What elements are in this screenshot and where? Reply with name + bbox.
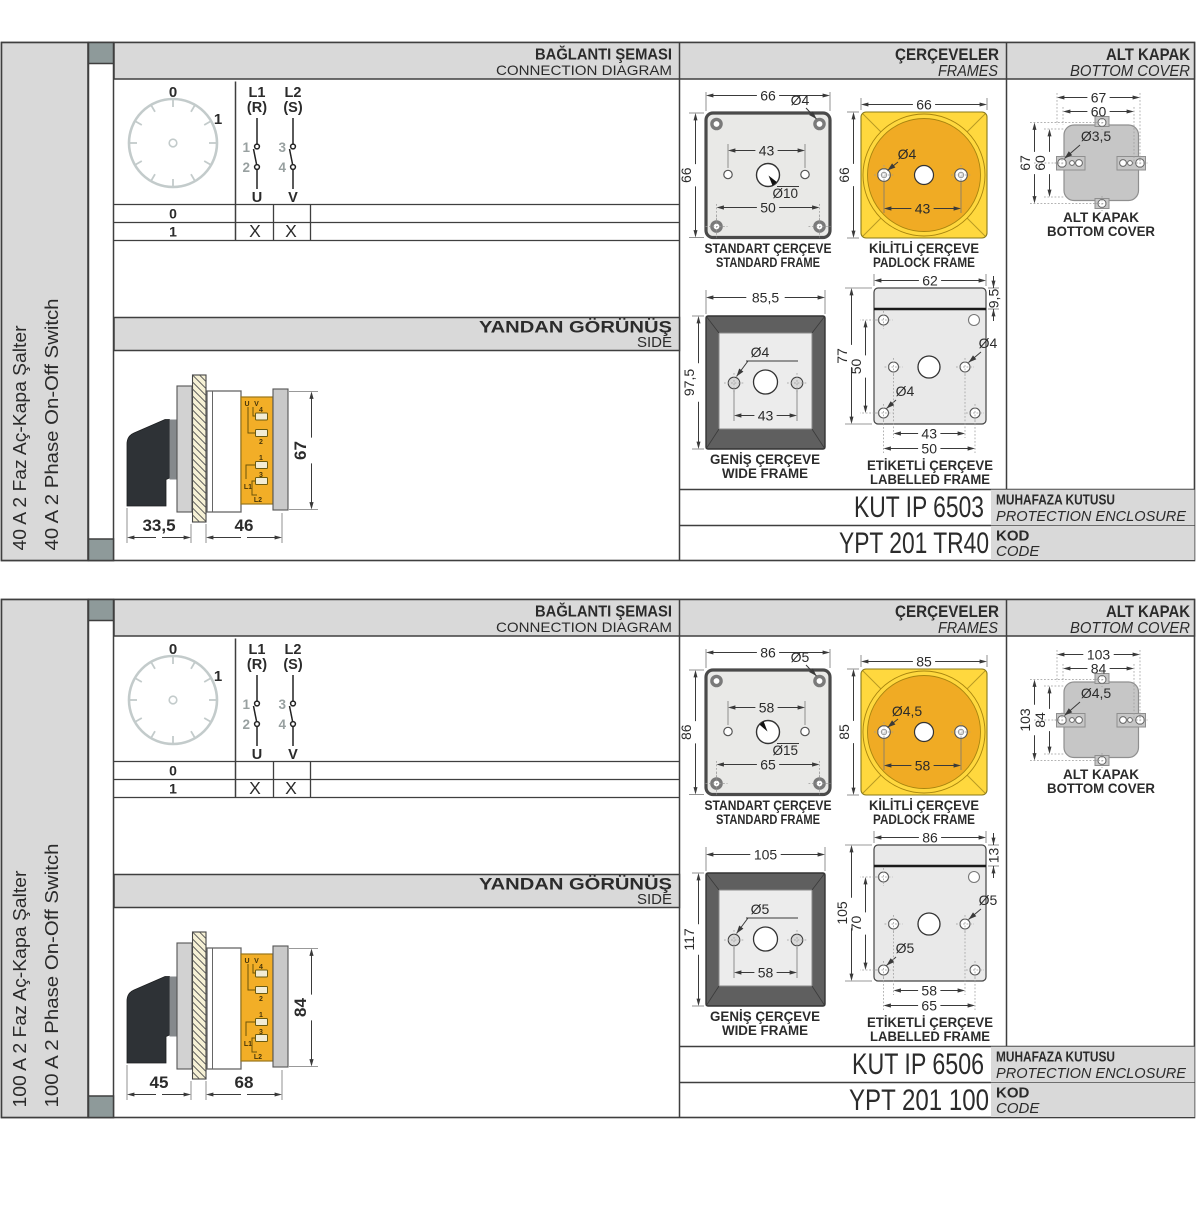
- svg-text:L2: L2: [285, 85, 302, 101]
- svg-text:66: 66: [760, 87, 776, 103]
- svg-text:1: 1: [259, 455, 263, 462]
- svg-text:58: 58: [921, 982, 937, 998]
- svg-text:SIDE: SIDE: [637, 334, 672, 351]
- svg-text:43: 43: [921, 425, 937, 441]
- svg-text:33,5: 33,5: [142, 516, 175, 535]
- svg-text:PADLOCK FRAME: PADLOCK FRAME: [873, 255, 975, 270]
- svg-text:50: 50: [921, 440, 937, 456]
- svg-text:STANDARD FRAME: STANDARD FRAME: [716, 812, 820, 827]
- svg-text:U: U: [244, 401, 249, 408]
- svg-text:X: X: [249, 221, 261, 241]
- svg-text:(R): (R): [247, 657, 267, 673]
- svg-text:Ø5: Ø5: [791, 649, 810, 665]
- svg-text:YPT 201 100: YPT 201 100: [849, 1084, 989, 1117]
- svg-text:BOTTOM COVER: BOTTOM COVER: [1047, 224, 1155, 239]
- svg-text:84: 84: [291, 998, 310, 1017]
- svg-text:97,5: 97,5: [681, 369, 697, 396]
- svg-text:KUT IP 6503: KUT IP 6503: [854, 491, 984, 524]
- svg-text:86: 86: [922, 829, 938, 845]
- svg-text:CONNECTION DIAGRAM: CONNECTION DIAGRAM: [496, 62, 672, 78]
- svg-text:ETİKETLİ ÇERÇEVE: ETİKETLİ ÇERÇEVE: [867, 1015, 993, 1030]
- svg-text:60: 60: [1091, 103, 1107, 119]
- svg-text:65: 65: [921, 997, 937, 1013]
- svg-text:LABELLED FRAME: LABELLED FRAME: [870, 1029, 990, 1044]
- svg-text:85: 85: [836, 724, 852, 740]
- svg-text:PROTECTION ENCLOSURE: PROTECTION ENCLOSURE: [996, 508, 1187, 525]
- svg-text:13: 13: [986, 848, 1002, 864]
- svg-text:2: 2: [259, 996, 263, 1003]
- svg-text:Ø5: Ø5: [979, 892, 998, 908]
- svg-text:85,5: 85,5: [752, 289, 779, 305]
- svg-text:L1: L1: [244, 1041, 252, 1048]
- svg-text:Ø4: Ø4: [791, 92, 810, 108]
- svg-text:70: 70: [848, 916, 864, 932]
- svg-text:WIDE FRAME: WIDE FRAME: [722, 466, 808, 481]
- svg-text:1: 1: [259, 1012, 263, 1019]
- svg-text:GENİŞ ÇERÇEVE: GENİŞ ÇERÇEVE: [710, 452, 820, 467]
- svg-text:YPT 201 TR40: YPT 201 TR40: [839, 527, 989, 560]
- svg-text:L2: L2: [254, 1054, 262, 1061]
- svg-text:ÇERÇEVELER: ÇERÇEVELER: [895, 602, 999, 621]
- svg-text:BAĞLANTI ŞEMASI: BAĞLANTI ŞEMASI: [535, 603, 672, 621]
- svg-text:Ø4: Ø4: [896, 383, 915, 399]
- svg-text:0: 0: [169, 84, 177, 101]
- svg-text:KOD: KOD: [996, 528, 1030, 545]
- svg-text:U: U: [252, 190, 262, 206]
- svg-text:L2: L2: [254, 497, 262, 504]
- svg-text:ETİKETLİ ÇERÇEVE: ETİKETLİ ÇERÇEVE: [867, 458, 993, 473]
- svg-text:86: 86: [678, 724, 694, 740]
- svg-text:1: 1: [169, 781, 177, 797]
- svg-text:Ø4: Ø4: [898, 146, 917, 162]
- svg-text:Ø3,5: Ø3,5: [1081, 128, 1112, 144]
- svg-text:9,5: 9,5: [986, 289, 1002, 309]
- svg-text:U: U: [252, 747, 262, 763]
- svg-text:ALT KAPAK: ALT KAPAK: [1063, 210, 1139, 225]
- svg-text:FRAMES: FRAMES: [938, 63, 999, 80]
- svg-text:V: V: [288, 747, 298, 763]
- svg-text:MUHAFAZA KUTUSU: MUHAFAZA KUTUSU: [996, 1049, 1115, 1066]
- svg-text:1: 1: [242, 697, 250, 712]
- svg-text:84: 84: [1091, 660, 1107, 676]
- svg-text:50: 50: [760, 199, 776, 215]
- svg-text:103: 103: [1017, 708, 1033, 732]
- svg-text:46: 46: [235, 516, 254, 535]
- svg-text:V: V: [288, 190, 298, 206]
- svg-text:45: 45: [150, 1073, 169, 1092]
- svg-text:0: 0: [169, 206, 177, 222]
- svg-text:2: 2: [242, 717, 250, 732]
- svg-text:Ø4,5: Ø4,5: [1081, 685, 1112, 701]
- svg-text:STANDART ÇERÇEVE: STANDART ÇERÇEVE: [705, 798, 832, 813]
- svg-text:4: 4: [278, 160, 286, 175]
- svg-text:X: X: [285, 778, 297, 798]
- svg-text:BAĞLANTI ŞEMASI: BAĞLANTI ŞEMASI: [535, 46, 672, 64]
- svg-text:STANDARD FRAME: STANDARD FRAME: [716, 255, 820, 270]
- svg-text:Ø10: Ø10: [772, 186, 798, 201]
- svg-text:2: 2: [259, 439, 263, 446]
- svg-text:KOD: KOD: [996, 1085, 1030, 1102]
- svg-text:85: 85: [916, 653, 932, 669]
- svg-text:58: 58: [759, 699, 775, 715]
- svg-text:L1: L1: [249, 642, 266, 658]
- svg-text:Ø5: Ø5: [896, 940, 915, 956]
- svg-text:L2: L2: [285, 642, 302, 658]
- svg-text:Ø4,5: Ø4,5: [892, 703, 923, 719]
- svg-text:100 A 2 Faz Aç-Kapa Şalter: 100 A 2 Faz Aç-Kapa Şalter: [10, 870, 30, 1107]
- svg-text:1: 1: [169, 224, 177, 240]
- svg-text:KİLİTLİ ÇERÇEVE: KİLİTLİ ÇERÇEVE: [869, 798, 979, 813]
- svg-text:4: 4: [278, 717, 286, 732]
- svg-text:FRAMES: FRAMES: [938, 620, 999, 637]
- svg-text:66: 66: [678, 167, 694, 183]
- svg-text:65: 65: [760, 756, 776, 772]
- svg-text:KİLİTLİ ÇERÇEVE: KİLİTLİ ÇERÇEVE: [869, 241, 979, 256]
- svg-text:Ø4: Ø4: [979, 335, 998, 351]
- svg-text:43: 43: [915, 200, 931, 216]
- svg-text:(S): (S): [283, 100, 303, 116]
- svg-text:105: 105: [754, 846, 778, 862]
- svg-text:BOTTOM COVER: BOTTOM COVER: [1047, 781, 1155, 796]
- svg-text:67: 67: [1017, 155, 1033, 171]
- svg-text:68: 68: [235, 1073, 254, 1092]
- svg-text:CODE: CODE: [996, 543, 1040, 560]
- svg-text:58: 58: [915, 757, 931, 773]
- svg-text:BOTTOM COVER: BOTTOM COVER: [1070, 620, 1190, 637]
- svg-text:CODE: CODE: [996, 1100, 1040, 1117]
- svg-text:ÇERÇEVELER: ÇERÇEVELER: [895, 45, 999, 64]
- svg-text:WIDE FRAME: WIDE FRAME: [722, 1023, 808, 1038]
- svg-text:67: 67: [291, 441, 310, 460]
- svg-text:Ø5: Ø5: [751, 901, 770, 917]
- svg-text:66: 66: [836, 167, 852, 183]
- svg-text:0: 0: [169, 763, 177, 779]
- svg-text:ALT KAPAK: ALT KAPAK: [1063, 767, 1139, 782]
- svg-text:(R): (R): [247, 100, 267, 116]
- svg-text:43: 43: [759, 142, 775, 158]
- svg-text:PADLOCK FRAME: PADLOCK FRAME: [873, 812, 975, 827]
- svg-text:BOTTOM COVER: BOTTOM COVER: [1070, 63, 1190, 80]
- svg-text:100 A 2 Phase On-Off Switch: 100 A 2 Phase On-Off Switch: [42, 844, 62, 1108]
- svg-text:3: 3: [278, 697, 286, 712]
- svg-text:ALT KAPAK: ALT KAPAK: [1106, 602, 1191, 621]
- svg-text:50: 50: [848, 359, 864, 375]
- svg-text:GENİŞ ÇERÇEVE: GENİŞ ÇERÇEVE: [710, 1009, 820, 1024]
- svg-text:117: 117: [681, 928, 697, 951]
- svg-text:CONNECTION DIAGRAM: CONNECTION DIAGRAM: [496, 619, 672, 635]
- svg-text:2: 2: [242, 160, 250, 175]
- svg-text:X: X: [285, 221, 297, 241]
- svg-text:U: U: [244, 958, 249, 965]
- svg-text:X: X: [249, 778, 261, 798]
- svg-text:1: 1: [242, 140, 250, 155]
- svg-text:ALT KAPAK: ALT KAPAK: [1106, 45, 1191, 64]
- svg-text:40 A 2 Phase On-Off Switch: 40 A 2 Phase On-Off Switch: [42, 299, 62, 551]
- svg-text:LABELLED FRAME: LABELLED FRAME: [870, 472, 990, 487]
- svg-text:L1: L1: [244, 484, 252, 491]
- svg-text:STANDART ÇERÇEVE: STANDART ÇERÇEVE: [705, 241, 832, 256]
- svg-text:SIDE: SIDE: [637, 891, 672, 908]
- svg-text:Ø15: Ø15: [772, 743, 798, 758]
- svg-text:58: 58: [758, 964, 774, 980]
- svg-text:MUHAFAZA KUTUSU: MUHAFAZA KUTUSU: [996, 492, 1115, 509]
- svg-text:62: 62: [922, 272, 938, 288]
- svg-text:Ø4: Ø4: [751, 344, 770, 360]
- svg-text:1: 1: [214, 111, 222, 128]
- svg-text:PROTECTION ENCLOSURE: PROTECTION ENCLOSURE: [996, 1065, 1187, 1082]
- svg-text:66: 66: [916, 96, 932, 112]
- svg-text:KUT IP 6506: KUT IP 6506: [852, 1048, 984, 1081]
- svg-text:40 A 2 Faz Aç-Kapa Şalter: 40 A 2 Faz Aç-Kapa Şalter: [10, 326, 30, 551]
- svg-text:3: 3: [278, 140, 286, 155]
- svg-text:0: 0: [169, 641, 177, 658]
- svg-text:L1: L1: [249, 85, 266, 101]
- svg-text:86: 86: [760, 644, 776, 660]
- svg-text:1: 1: [214, 668, 222, 685]
- svg-text:43: 43: [758, 407, 774, 423]
- svg-text:(S): (S): [283, 657, 303, 673]
